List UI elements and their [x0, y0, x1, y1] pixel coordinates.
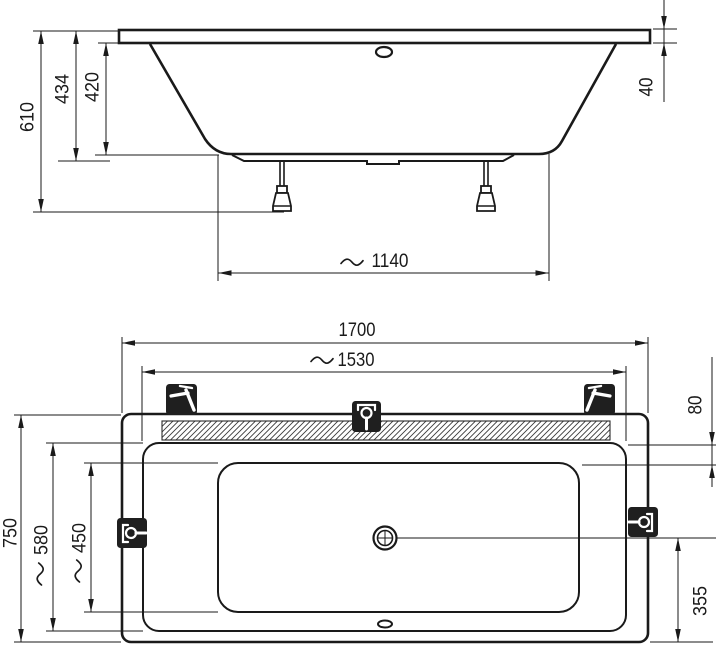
dim-bottom-width-label: 450 — [69, 523, 90, 553]
dim-overall-length-label: 1700 — [339, 320, 376, 341]
approx-tilde — [37, 563, 43, 585]
headrest-area-hatch — [162, 421, 610, 440]
fixture-top-center — [352, 401, 381, 432]
fixture-top-left — [166, 384, 197, 415]
tub-shell-profile — [150, 44, 616, 154]
side-view: 610 434 420 40 1140 — [17, 0, 677, 281]
dim-shell-height-label: 434 — [52, 74, 73, 104]
technical-drawing: 610 434 420 40 1140 — [0, 0, 719, 650]
overflow-hole-plan — [378, 621, 392, 628]
dim-total-height-label: 610 — [17, 102, 38, 132]
adjustable-foot-right — [477, 162, 495, 211]
side-dimension-arrows — [38, 16, 667, 276]
plan-view: 1700 1530 80 750 580 450 355 — [0, 320, 716, 642]
dim-overall-width-label: 750 — [0, 518, 21, 548]
fixture-right — [628, 507, 658, 537]
dim-rim-opening-width-label: 580 — [31, 525, 52, 555]
tub-rim-profile — [119, 30, 650, 43]
support-frame — [232, 155, 514, 164]
fixture-left — [117, 518, 147, 548]
dim-base-length-label: 1140 — [372, 251, 409, 272]
approx-tilde — [311, 357, 333, 363]
drain — [374, 527, 397, 550]
dim-depth-label: 420 — [82, 72, 103, 102]
drawing-sheet: 610 434 420 40 1140 — [0, 0, 719, 650]
fixture-top-right — [584, 384, 615, 415]
overflow-hole-side — [376, 47, 392, 57]
dim-rim-opening-length-label: 1530 — [338, 350, 375, 371]
adjustable-foot-left — [273, 162, 291, 211]
dim-drain-offset-label: 355 — [690, 586, 711, 616]
dim-rim-thickness-label: 40 — [636, 78, 657, 97]
approx-tilde — [341, 259, 363, 265]
dim-headrest-depth-label: 80 — [685, 396, 706, 415]
approx-tilde — [75, 560, 81, 582]
